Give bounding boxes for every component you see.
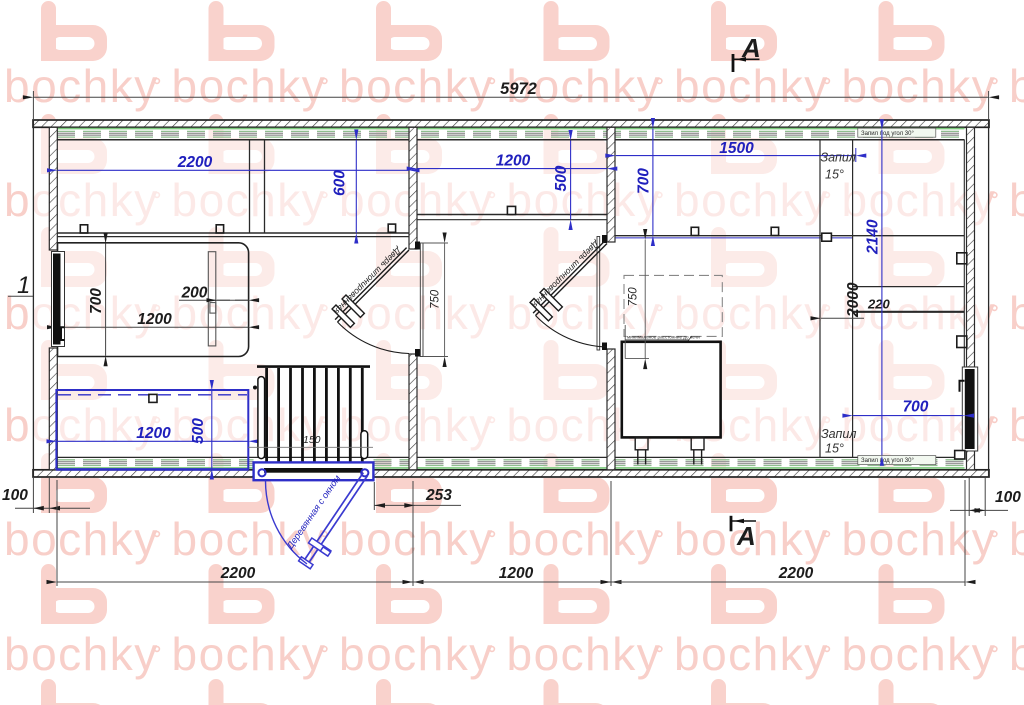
svg-text:bochky: bochky	[4, 628, 159, 680]
svg-text:100: 100	[995, 489, 1021, 506]
svg-text:bochky: bochky	[339, 60, 494, 112]
svg-text:500: 500	[190, 418, 207, 444]
svg-text:1: 1	[17, 272, 30, 299]
svg-text:bochky: bochky	[339, 628, 494, 680]
svg-text:200: 200	[181, 285, 208, 302]
svg-text:bochky: bochky	[842, 60, 997, 112]
svg-text:Запил: Запил	[821, 151, 856, 165]
svg-text:15°: 15°	[825, 442, 844, 456]
svg-text:bochky: bochky	[1009, 399, 1024, 451]
svg-text:минимальное расстояние до печи: минимальное расстояние до печи	[627, 335, 700, 340]
svg-text:bochky: bochky	[172, 60, 327, 112]
svg-text:2000: 2000	[845, 282, 862, 318]
svg-text:15°: 15°	[825, 168, 844, 182]
svg-text:100: 100	[2, 487, 28, 504]
svg-text:700: 700	[88, 288, 105, 314]
svg-text:bochky: bochky	[4, 513, 159, 565]
svg-text:bochky: bochky	[674, 628, 829, 680]
svg-text:253: 253	[425, 487, 452, 504]
svg-text:bochky: bochky	[507, 513, 662, 565]
svg-text:500: 500	[553, 165, 570, 191]
svg-text:2200: 2200	[177, 154, 213, 171]
svg-text:Запил под угол 30°: Запил под угол 30°	[861, 458, 914, 464]
svg-text:bochky: bochky	[1009, 174, 1024, 226]
svg-text:1200: 1200	[499, 565, 534, 582]
svg-text:bochky: bochky	[507, 628, 662, 680]
svg-text:750: 750	[628, 287, 640, 307]
svg-text:bochky: bochky	[674, 60, 829, 112]
svg-text:700: 700	[903, 399, 929, 416]
svg-text:bochky: bochky	[1009, 60, 1024, 112]
svg-text:A: A	[741, 33, 761, 63]
svg-text:2200: 2200	[220, 565, 256, 582]
svg-text:5972: 5972	[500, 80, 537, 98]
svg-text:bochky: bochky	[339, 513, 494, 565]
svg-text:Запил под угол 30°: Запил под угол 30°	[861, 131, 914, 137]
svg-text:750: 750	[430, 289, 442, 309]
svg-text:bochky: bochky	[1009, 628, 1024, 680]
svg-text:bochky: bochky	[4, 60, 159, 112]
svg-text:bochky: bochky	[1009, 513, 1024, 565]
svg-text:bochky: bochky	[172, 628, 327, 680]
svg-text:1200: 1200	[496, 153, 531, 170]
svg-text:bochky: bochky	[842, 513, 997, 565]
svg-text:Запил: Запил	[821, 427, 856, 441]
svg-text:700: 700	[636, 168, 653, 194]
svg-text:1500: 1500	[719, 140, 754, 157]
svg-text:1200: 1200	[136, 425, 171, 442]
svg-text:1200: 1200	[137, 311, 172, 328]
svg-text:150: 150	[303, 434, 321, 446]
svg-text:600: 600	[332, 170, 349, 196]
svg-text:2140: 2140	[865, 219, 882, 255]
svg-text:bochky: bochky	[842, 628, 997, 680]
svg-text:220: 220	[867, 297, 890, 312]
svg-text:2200: 2200	[778, 565, 814, 582]
svg-text:bochky: bochky	[1009, 287, 1024, 339]
svg-text:A: A	[736, 521, 756, 551]
